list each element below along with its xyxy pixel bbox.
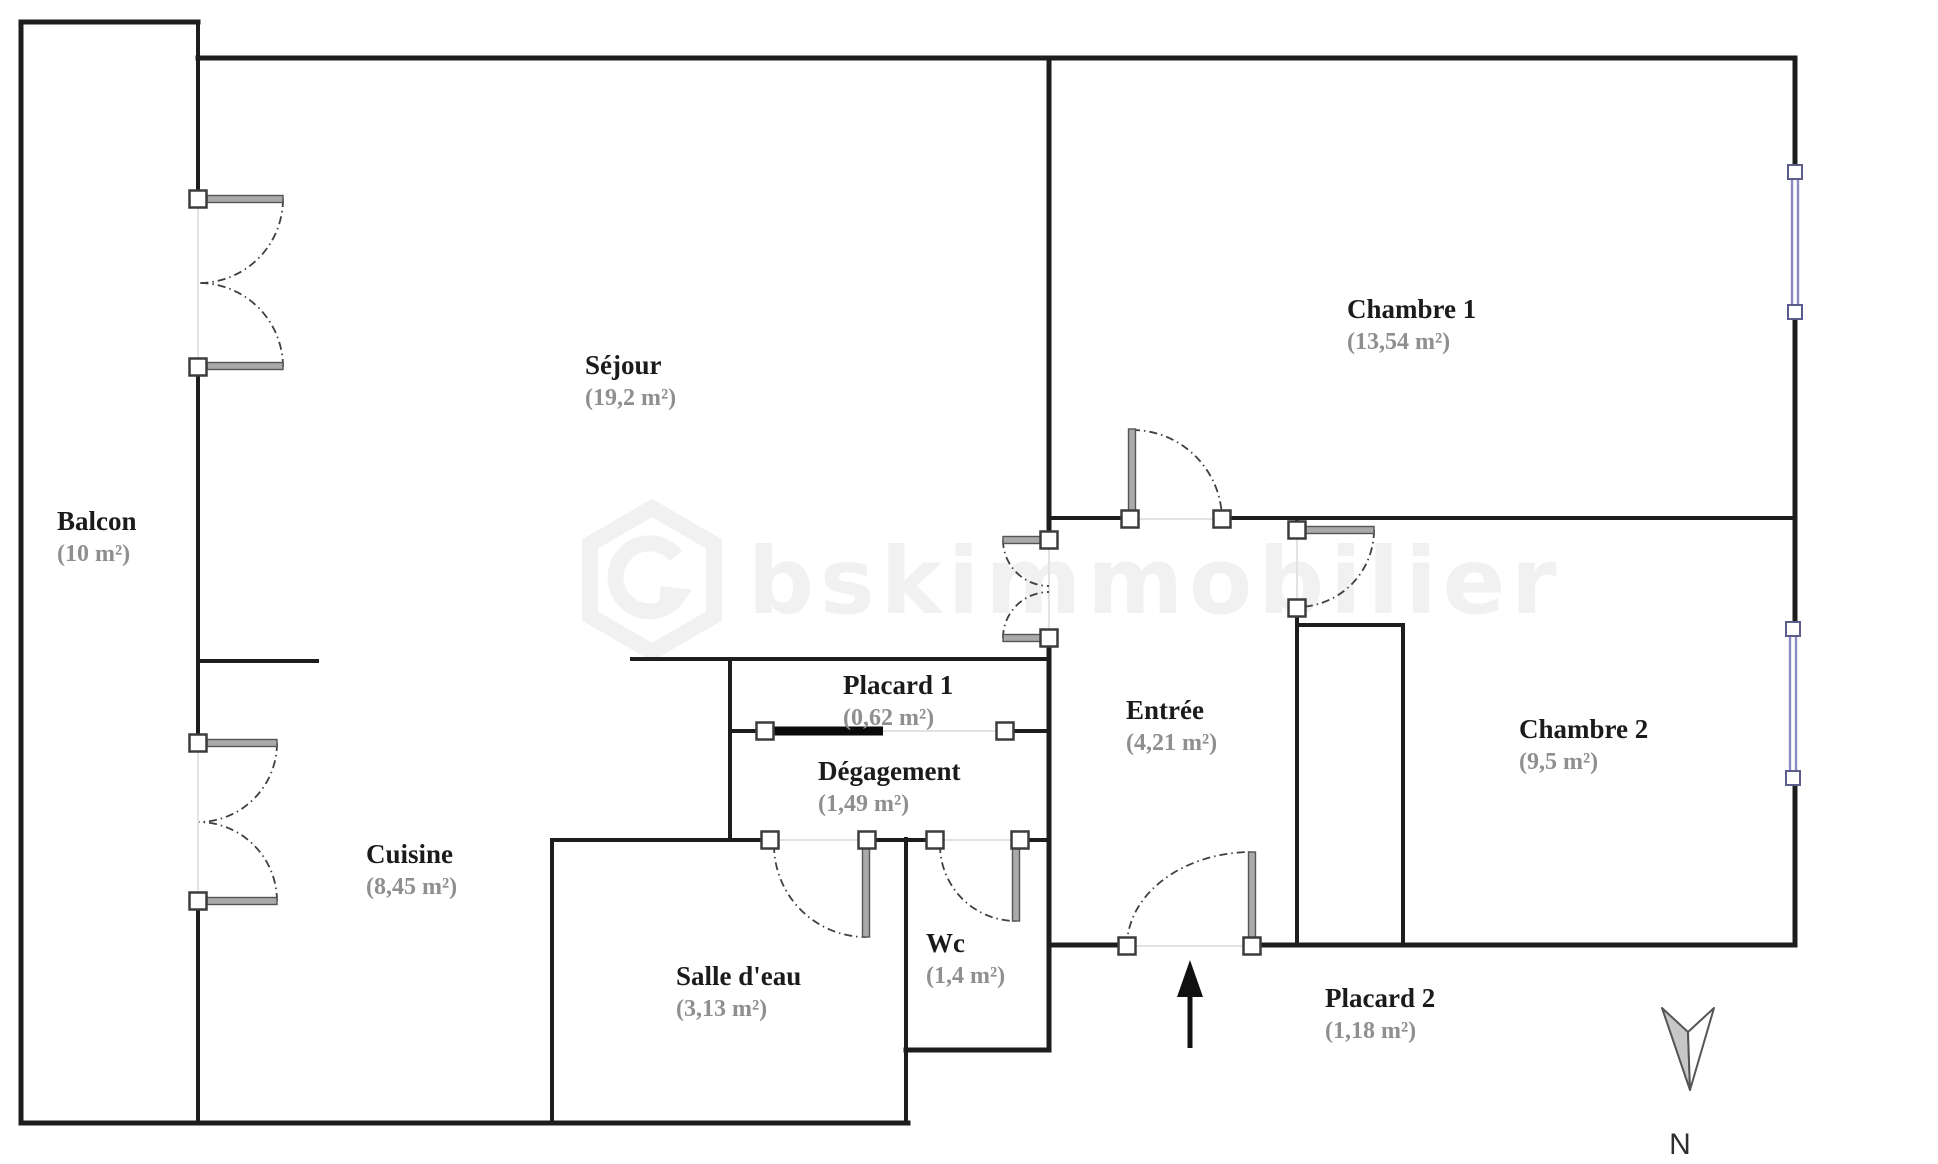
room-area: (1,49 m²): [818, 788, 960, 821]
room-label-salledeau: Salle d'eau (3,13 m²): [676, 960, 801, 1026]
room-label-degagement: Dégagement (1,49 m²): [818, 755, 960, 821]
window-chambre1: [1788, 165, 1802, 319]
door-leaves: [207, 196, 1374, 943]
room-name: Chambre 2: [1519, 713, 1648, 746]
room-area: (8,45 m²): [366, 871, 457, 904]
room-label-entree: Entrée (4,21 m²): [1126, 694, 1217, 760]
room-name: Séjour: [585, 349, 676, 382]
room-name: Cuisine: [366, 838, 457, 871]
compass-north-label: N: [1660, 1128, 1700, 1162]
room-name: Wc: [926, 927, 1005, 960]
room-name: Chambre 1: [1347, 293, 1476, 326]
room-label-cuisine: Cuisine (8,45 m²): [366, 838, 457, 904]
room-label-placard2: Placard 2 (1,18 m²): [1325, 982, 1435, 1048]
room-area: (3,13 m²): [676, 993, 801, 1026]
room-area: (0,62 m²): [843, 702, 953, 735]
opening-lines: [198, 198, 1297, 946]
room-name: Entrée: [1126, 694, 1217, 727]
north-compass-icon: [1662, 1008, 1714, 1090]
room-name: Dégagement: [818, 755, 960, 788]
walls: [21, 22, 1795, 1123]
room-name: Placard 2: [1325, 982, 1435, 1015]
room-name: Salle d'eau: [676, 960, 801, 993]
room-label-balcon: Balcon (10 m²): [57, 505, 137, 571]
room-label-chambre2: Chambre 2 (9,5 m²): [1519, 713, 1648, 779]
window-chambre2: [1786, 622, 1800, 785]
room-area: (9,5 m²): [1519, 746, 1648, 779]
room-area: (10 m²): [57, 538, 137, 571]
room-area: (13,54 m²): [1347, 326, 1476, 359]
room-area: (19,2 m²): [585, 382, 676, 415]
room-area: (1,4 m²): [926, 960, 1005, 993]
room-label-chambre1: Chambre 1 (13,54 m²): [1347, 293, 1476, 359]
room-area: (1,18 m²): [1325, 1015, 1435, 1048]
room-label-placard1: Placard 1 (0,62 m²): [843, 669, 953, 735]
room-name: Balcon: [57, 505, 137, 538]
room-name: Placard 1: [843, 669, 953, 702]
room-label-sejour: Séjour (19,2 m²): [585, 349, 676, 415]
floor-plan: bskimmobilier: [0, 0, 1938, 1164]
door-arcs: [199, 199, 1374, 946]
entrance-arrow-icon: [1177, 960, 1203, 1048]
room-area: (4,21 m²): [1126, 727, 1217, 760]
room-label-wc: Wc (1,4 m²): [926, 927, 1005, 993]
